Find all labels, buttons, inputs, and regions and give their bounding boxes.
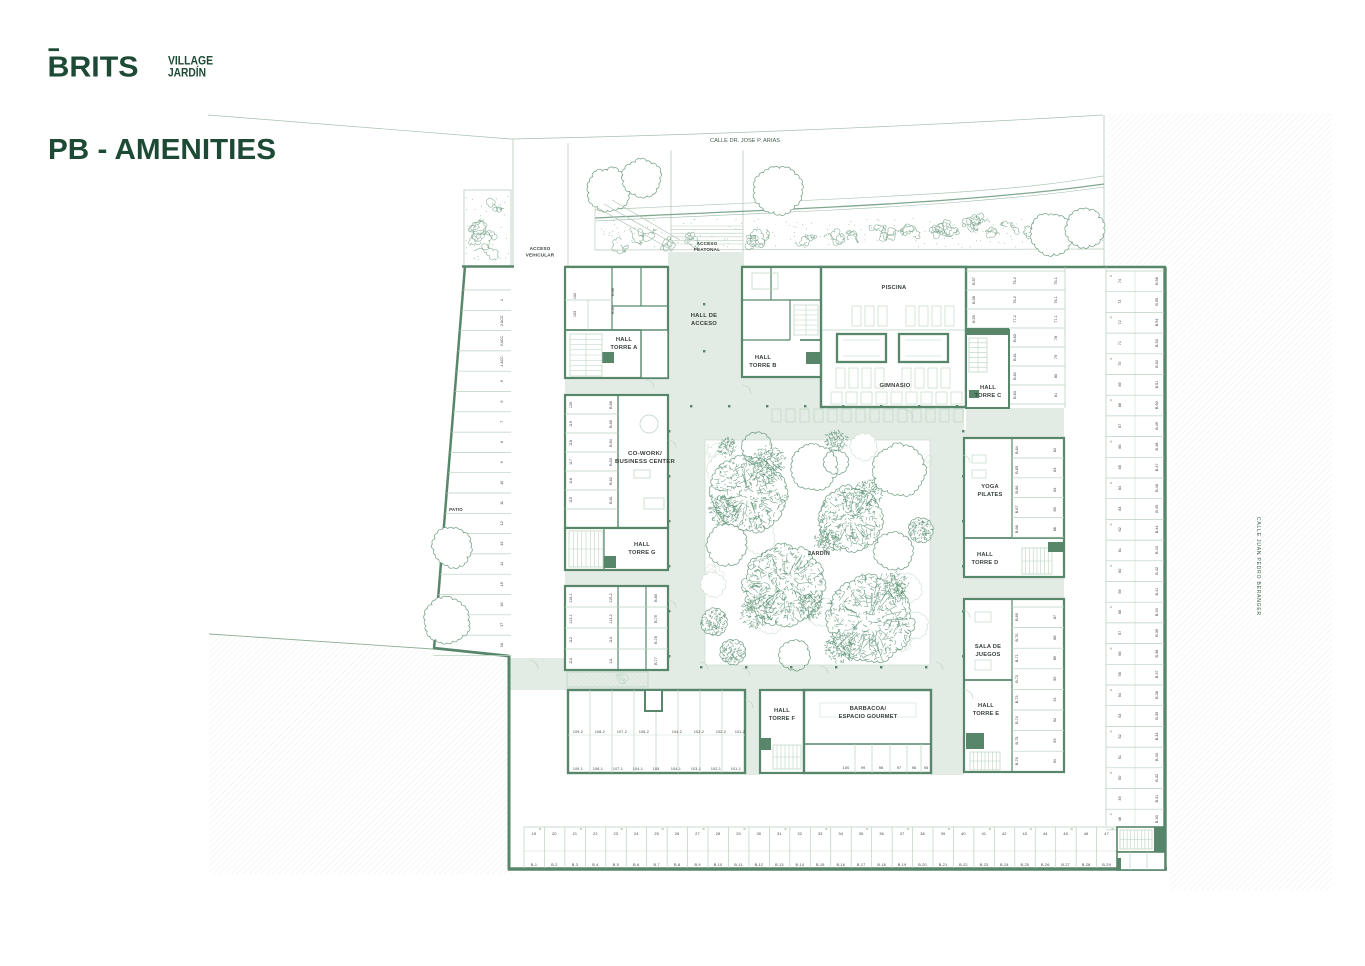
svg-text:103-1: 103-1 — [691, 767, 701, 771]
svg-text:B.37: B.37 — [1155, 670, 1159, 678]
svg-text:115-2: 115-2 — [609, 593, 613, 602]
svg-text:HALL: HALL — [980, 385, 996, 391]
svg-text:114-1: 114-1 — [569, 614, 573, 623]
svg-text:5: 5 — [500, 380, 504, 382]
svg-text:B.62: B.62 — [1013, 372, 1017, 380]
svg-text:B.46: B.46 — [1155, 484, 1159, 492]
svg-text:43: 43 — [1022, 832, 1027, 836]
svg-text:3 ACC.: 3 ACC. — [500, 335, 504, 346]
svg-text:118: 118 — [569, 440, 573, 446]
svg-text:B.4: B.4 — [592, 863, 598, 867]
svg-text:29: 29 — [736, 832, 741, 836]
svg-text:JUEGOS: JUEGOS — [976, 652, 1001, 658]
svg-text:107-1: 107-1 — [613, 767, 623, 771]
svg-text:TORRE A: TORRE A — [610, 345, 638, 351]
svg-text:41: 41 — [982, 832, 987, 836]
svg-text:54: 54 — [1118, 693, 1122, 697]
svg-text:TORRE G: TORRE G — [628, 550, 656, 556]
svg-text:38: 38 — [920, 832, 925, 836]
svg-text:117: 117 — [569, 459, 573, 465]
svg-text:69: 69 — [1118, 382, 1122, 386]
svg-text:B.38: B.38 — [1155, 650, 1159, 658]
svg-text:B.77: B.77 — [654, 657, 658, 665]
svg-text:B.63: B.63 — [1013, 391, 1017, 399]
svg-text:B.53: B.53 — [1155, 339, 1159, 347]
svg-text:112: 112 — [569, 637, 573, 643]
svg-text:44: 44 — [1043, 832, 1048, 836]
svg-text:31: 31 — [777, 832, 782, 836]
svg-text:TORRE F: TORRE F — [769, 716, 796, 722]
svg-text:7: 7 — [500, 421, 504, 423]
svg-text:PB - AMENITIES: PB - AMENITIES — [48, 134, 276, 166]
svg-text:53: 53 — [1118, 714, 1122, 718]
svg-text:B.15: B.15 — [816, 863, 825, 867]
svg-text:B.62: B.62 — [609, 477, 613, 485]
svg-text:13: 13 — [500, 542, 504, 546]
svg-text:89: 89 — [1053, 656, 1057, 660]
svg-text:CALLE JUAN PEDRO BERANGER: CALLE JUAN PEDRO BERANGER — [1255, 517, 1261, 616]
svg-text:B.32: B.32 — [1155, 774, 1159, 782]
svg-text:104-1: 104-1 — [671, 767, 681, 771]
svg-text:6: 6 — [500, 401, 504, 403]
svg-text:52: 52 — [1118, 734, 1122, 738]
svg-text:B.21: B.21 — [939, 863, 948, 867]
svg-text:PISCINA: PISCINA — [882, 285, 908, 291]
svg-text:B.23: B.23 — [980, 863, 989, 867]
svg-text:45: 45 — [1063, 832, 1068, 836]
svg-text:2 ACC.: 2 ACC. — [500, 315, 504, 326]
svg-text:B.41: B.41 — [1155, 588, 1159, 596]
svg-text:B.10: B.10 — [714, 863, 723, 867]
svg-text:B.68: B.68 — [1015, 525, 1019, 533]
svg-text:25: 25 — [654, 832, 659, 836]
svg-text:27: 27 — [695, 832, 700, 836]
svg-text:B.47: B.47 — [1155, 463, 1159, 471]
svg-text:JARDÍN: JARDÍN — [168, 65, 206, 80]
svg-text:83: 83 — [1053, 468, 1057, 472]
svg-text:36: 36 — [879, 832, 884, 836]
svg-text:87: 87 — [1053, 615, 1057, 619]
svg-text:B.61: B.61 — [1013, 353, 1017, 361]
svg-text:101-2: 101-2 — [735, 730, 745, 734]
svg-text:59: 59 — [1118, 589, 1122, 593]
svg-text:17: 17 — [500, 623, 504, 627]
svg-text:HALL: HALL — [755, 355, 772, 361]
svg-text:B.26: B.26 — [1041, 863, 1050, 867]
svg-text:113: 113 — [609, 637, 613, 643]
svg-text:B.18: B.18 — [877, 863, 886, 867]
svg-text:51: 51 — [1118, 755, 1122, 759]
svg-text:58: 58 — [1118, 610, 1122, 614]
svg-text:HALL: HALL — [978, 703, 994, 709]
svg-text:73: 73 — [1118, 300, 1122, 304]
svg-text:B.39: B.39 — [1155, 629, 1159, 637]
svg-text:PILATES: PILATES — [978, 492, 1003, 498]
svg-text:11: 11 — [500, 501, 504, 505]
svg-text:102-2: 102-2 — [716, 730, 726, 734]
svg-text:B.5: B.5 — [613, 863, 619, 867]
svg-text:B.71: B.71 — [1015, 654, 1019, 662]
svg-text:B.56: B.56 — [1155, 277, 1159, 285]
svg-text:103-2: 103-2 — [694, 730, 704, 734]
svg-text:B.57: B.57 — [972, 277, 976, 285]
svg-text:B.9: B.9 — [694, 863, 700, 867]
svg-text:B.44: B.44 — [1155, 525, 1159, 533]
svg-text:9: 9 — [500, 461, 504, 463]
svg-text:20: 20 — [552, 832, 557, 836]
svg-text:98: 98 — [879, 766, 884, 770]
svg-text:YOGA: YOGA — [981, 484, 999, 490]
svg-text:SALA DE: SALA DE — [975, 644, 1001, 650]
svg-text:71: 71 — [1118, 341, 1122, 345]
svg-text:HALL: HALL — [634, 542, 650, 548]
svg-text:B.67: B.67 — [611, 306, 615, 314]
svg-text:BUSINESS CENTER: BUSINESS CENTER — [615, 459, 675, 465]
svg-text:100: 100 — [843, 766, 850, 770]
svg-text:B.63: B.63 — [609, 458, 613, 466]
svg-text:108-2: 108-2 — [595, 730, 605, 734]
svg-text:67: 67 — [1118, 424, 1122, 428]
svg-text:96: 96 — [912, 766, 917, 770]
svg-text:CO-WORK/: CO-WORK/ — [628, 451, 662, 457]
svg-text:B.16: B.16 — [836, 863, 845, 867]
svg-text:B.29: B.29 — [1102, 863, 1111, 867]
svg-text:B.14: B.14 — [796, 863, 805, 867]
svg-text:22: 22 — [593, 832, 598, 836]
svg-text:B.27: B.27 — [1061, 863, 1070, 867]
svg-text:B.48: B.48 — [1155, 443, 1159, 451]
svg-text:B.64: B.64 — [1015, 446, 1019, 454]
svg-text:95: 95 — [924, 766, 929, 770]
svg-text:33: 33 — [818, 832, 823, 836]
svg-text:66: 66 — [1118, 444, 1122, 448]
svg-text:90: 90 — [1053, 677, 1057, 681]
svg-text:BRITS: BRITS — [48, 52, 139, 84]
svg-text:72: 72 — [1118, 320, 1122, 324]
svg-text:B.45: B.45 — [1155, 505, 1159, 513]
svg-text:103: 103 — [573, 311, 577, 317]
svg-text:55: 55 — [1118, 672, 1122, 676]
svg-text:82: 82 — [1053, 448, 1057, 452]
svg-text:1: 1 — [500, 299, 504, 301]
svg-text:10: 10 — [500, 481, 504, 485]
svg-text:B.52: B.52 — [1155, 360, 1159, 368]
svg-text:B.70: B.70 — [1015, 634, 1019, 642]
svg-text:109-1: 109-1 — [573, 767, 583, 771]
svg-text:94: 94 — [1053, 759, 1057, 763]
svg-text:24: 24 — [634, 832, 639, 836]
svg-text:B.25: B.25 — [1020, 863, 1029, 867]
svg-text:42: 42 — [1002, 832, 1007, 836]
svg-text:B.7: B.7 — [654, 863, 660, 867]
svg-text:HALL: HALL — [616, 337, 633, 343]
svg-text:64: 64 — [1118, 486, 1122, 490]
svg-text:B.54: B.54 — [1155, 318, 1159, 326]
svg-text:114-2: 114-2 — [609, 614, 613, 623]
svg-text:B.59: B.59 — [972, 315, 976, 323]
svg-text:48: 48 — [1118, 817, 1122, 821]
svg-text:50: 50 — [1118, 776, 1122, 780]
svg-text:VEHICULAR: VEHICULAR — [526, 253, 555, 258]
svg-text:75-2: 75-2 — [1013, 277, 1017, 285]
svg-text:B.20: B.20 — [918, 863, 927, 867]
svg-text:102: 102 — [573, 293, 577, 299]
svg-text:97: 97 — [897, 766, 902, 770]
svg-text:B.6: B.6 — [633, 863, 639, 867]
svg-text:105: 105 — [653, 767, 660, 771]
svg-text:61: 61 — [1118, 548, 1122, 552]
svg-text:78: 78 — [1054, 336, 1058, 340]
svg-text:81: 81 — [1054, 393, 1058, 397]
svg-text:B.40: B.40 — [1155, 608, 1159, 616]
svg-text:46: 46 — [1084, 832, 1089, 836]
svg-text:102-1: 102-1 — [711, 767, 721, 771]
svg-text:B.36: B.36 — [1155, 691, 1159, 699]
svg-text:19: 19 — [532, 832, 537, 836]
svg-text:TORRE E: TORRE E — [973, 711, 1000, 717]
svg-text:35: 35 — [859, 832, 864, 836]
svg-text:30: 30 — [757, 832, 762, 836]
svg-text:104-1: 104-1 — [633, 767, 643, 771]
svg-text:B.42: B.42 — [1155, 567, 1159, 575]
svg-text:B.22: B.22 — [959, 863, 968, 867]
svg-text:75-1: 75-1 — [1054, 277, 1058, 285]
svg-text:107-2: 107-2 — [617, 730, 627, 734]
svg-text:16: 16 — [500, 603, 504, 607]
svg-text:PATIO: PATIO — [449, 507, 463, 512]
svg-text:JARDÍN: JARDÍN — [808, 549, 830, 557]
svg-text:ACCESO: ACCESO — [697, 241, 718, 246]
svg-text:56: 56 — [1118, 651, 1122, 655]
svg-text:BARBACOA/: BARBACOA/ — [850, 706, 887, 712]
svg-text:B.24: B.24 — [1000, 863, 1009, 867]
svg-text:62: 62 — [1118, 527, 1122, 531]
svg-text:B.1: B.1 — [531, 863, 537, 867]
svg-text:99: 99 — [861, 766, 866, 770]
svg-text:B.43: B.43 — [1155, 546, 1159, 554]
svg-text:18: 18 — [500, 643, 504, 647]
svg-text:68: 68 — [1118, 403, 1122, 407]
svg-text:91: 91 — [1053, 697, 1057, 701]
svg-text:70: 70 — [1118, 362, 1122, 366]
svg-text:TORRE B: TORRE B — [749, 363, 776, 369]
svg-text:86: 86 — [1053, 527, 1057, 531]
svg-text:85: 85 — [1053, 507, 1057, 511]
svg-text:106-2: 106-2 — [639, 730, 649, 734]
svg-text:HALL DE: HALL DE — [691, 313, 717, 319]
svg-text:B.78: B.78 — [654, 636, 658, 644]
svg-text:63: 63 — [1118, 507, 1122, 511]
svg-text:14: 14 — [500, 562, 504, 566]
svg-text:GIMNASIO: GIMNASIO — [880, 383, 911, 389]
svg-text:40: 40 — [961, 832, 966, 836]
svg-text:ESPACIO GOURMET: ESPACIO GOURMET — [839, 714, 898, 720]
svg-text:39: 39 — [941, 832, 946, 836]
svg-text:34: 34 — [838, 832, 843, 836]
svg-text:8: 8 — [500, 441, 504, 443]
svg-text:115: 115 — [569, 497, 573, 503]
svg-text:B.65: B.65 — [609, 420, 613, 428]
svg-text:TORRE C: TORRE C — [975, 393, 1002, 399]
svg-text:B.64: B.64 — [609, 439, 613, 447]
svg-text:77-2: 77-2 — [1013, 315, 1017, 323]
svg-text:76-1: 76-1 — [1054, 296, 1058, 304]
svg-text:B.68: B.68 — [611, 288, 615, 296]
svg-text:B.31: B.31 — [1155, 795, 1159, 803]
svg-text:49: 49 — [1118, 796, 1122, 800]
svg-text:HALL: HALL — [977, 552, 993, 558]
svg-text:B.58: B.58 — [972, 296, 976, 304]
svg-text:47: 47 — [1104, 832, 1109, 836]
svg-text:B.67: B.67 — [1015, 505, 1019, 513]
svg-text:120: 120 — [569, 402, 573, 408]
svg-text:B.8: B.8 — [674, 863, 680, 867]
svg-text:77-1: 77-1 — [1054, 315, 1058, 323]
svg-text:116: 116 — [569, 478, 573, 484]
svg-text:B.76: B.76 — [1015, 757, 1019, 765]
svg-text:B.50: B.50 — [1155, 401, 1159, 409]
svg-text:B.66: B.66 — [609, 401, 613, 409]
svg-text:B.19: B.19 — [898, 863, 907, 867]
svg-text:32: 32 — [798, 832, 803, 836]
svg-text:ACCESO: ACCESO — [691, 321, 717, 327]
svg-text:37: 37 — [900, 832, 905, 836]
svg-text:84: 84 — [1053, 487, 1057, 491]
svg-text:B.75: B.75 — [1015, 737, 1019, 745]
svg-text:B.49: B.49 — [1155, 422, 1159, 430]
svg-text:B.28: B.28 — [1082, 863, 1091, 867]
svg-text:B.51: B.51 — [1155, 381, 1159, 389]
svg-text:B.2: B.2 — [551, 863, 557, 867]
svg-text:74: 74 — [1118, 279, 1122, 283]
svg-text:B.74: B.74 — [1015, 716, 1019, 724]
svg-text:PEATONAL: PEATONAL — [694, 247, 720, 252]
svg-text:88: 88 — [1053, 635, 1057, 639]
svg-text:B.61: B.61 — [609, 496, 613, 504]
svg-text:B.60: B.60 — [1013, 334, 1017, 342]
svg-text:B.3: B.3 — [572, 863, 578, 867]
svg-text:57: 57 — [1118, 631, 1122, 635]
svg-text:B.12: B.12 — [755, 863, 764, 867]
svg-text:76-2: 76-2 — [1013, 296, 1017, 304]
svg-text:B.69: B.69 — [1015, 613, 1019, 621]
svg-text:108-1: 108-1 — [593, 767, 603, 771]
svg-text:104-2: 104-2 — [672, 730, 682, 734]
svg-text:B.73: B.73 — [1015, 695, 1019, 703]
svg-text:TORRE D: TORRE D — [972, 560, 999, 566]
svg-text:B.33: B.33 — [1155, 753, 1159, 761]
svg-text:B.72: B.72 — [1015, 675, 1019, 683]
svg-text:B.65: B.65 — [1015, 466, 1019, 474]
svg-text:101-1: 101-1 — [731, 767, 741, 771]
svg-text:79: 79 — [1054, 355, 1058, 359]
svg-text:28: 28 — [716, 832, 721, 836]
svg-text:65: 65 — [1118, 465, 1122, 469]
svg-text:B.11: B.11 — [734, 863, 742, 867]
svg-text:111: 111 — [609, 658, 613, 664]
svg-text:110: 110 — [569, 658, 573, 664]
svg-text:B.79: B.79 — [654, 615, 658, 623]
svg-text:B.35: B.35 — [1155, 712, 1159, 720]
svg-text:92: 92 — [1053, 718, 1057, 722]
svg-text:B.13: B.13 — [775, 863, 784, 867]
svg-text:B.66: B.66 — [1015, 486, 1019, 494]
svg-text:B.30: B.30 — [1155, 815, 1159, 823]
svg-text:80: 80 — [1054, 374, 1058, 378]
svg-text:B.80: B.80 — [654, 594, 658, 602]
svg-text:109-2: 109-2 — [573, 730, 583, 734]
svg-text:ACCESO: ACCESO — [530, 246, 551, 251]
svg-text:23: 23 — [613, 832, 618, 836]
svg-text:15: 15 — [500, 582, 504, 586]
svg-text:4 ACC.: 4 ACC. — [500, 355, 504, 366]
svg-text:26: 26 — [675, 832, 680, 836]
svg-text:B.17: B.17 — [857, 863, 866, 867]
svg-text:60: 60 — [1118, 569, 1122, 573]
svg-text:B.55: B.55 — [1155, 298, 1159, 306]
svg-text:CALLE DR. JOSE P. ARIAS: CALLE DR. JOSE P. ARIAS — [710, 138, 781, 144]
svg-text:21: 21 — [573, 832, 578, 836]
svg-text:93: 93 — [1053, 738, 1057, 742]
svg-text:HALL: HALL — [774, 708, 790, 714]
svg-text:116-1: 116-1 — [569, 593, 573, 602]
svg-text:B.34: B.34 — [1155, 732, 1159, 740]
svg-text:119: 119 — [569, 421, 573, 427]
svg-text:12: 12 — [500, 521, 504, 525]
